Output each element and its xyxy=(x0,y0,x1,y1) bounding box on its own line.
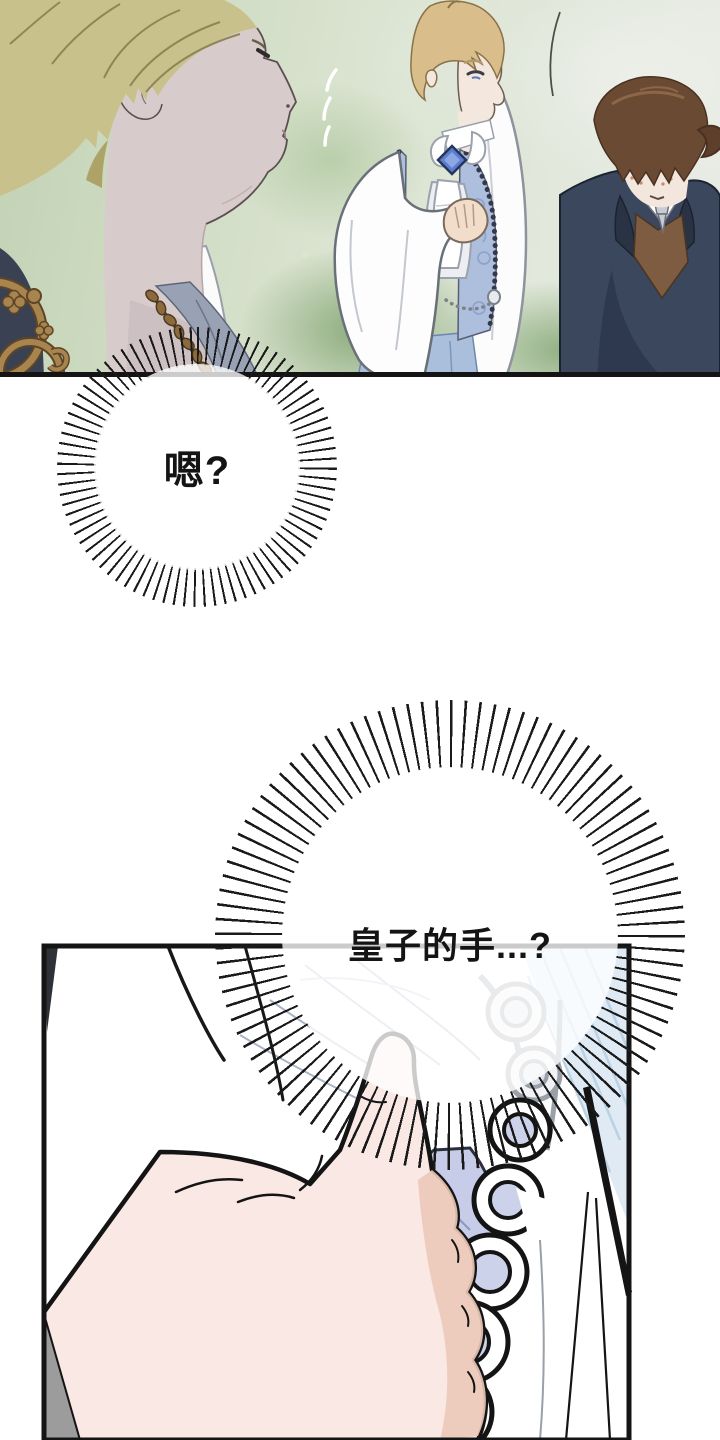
attendant-figure xyxy=(560,77,720,377)
noble-hair-nape-shadow xyxy=(86,140,108,188)
sparkle-marks xyxy=(324,70,336,145)
prince-ear xyxy=(426,70,437,87)
panel-garden-scene xyxy=(0,0,720,377)
prince-hand xyxy=(444,199,488,242)
bubble-1-text: 嗯? xyxy=(57,327,337,607)
prince-figure xyxy=(335,1,526,377)
garden-scene-art xyxy=(0,0,720,377)
motion-line xyxy=(550,12,560,96)
attendant-suit xyxy=(560,171,720,377)
bubble-2-text: 皇子的手...? xyxy=(215,700,685,1170)
speech-bubble-1: 嗯? xyxy=(57,327,337,607)
speech-bubble-2: 皇子的手...? xyxy=(215,700,685,1170)
noble-profile-figure xyxy=(0,0,296,377)
noble-nostril xyxy=(286,104,290,108)
comic-page: 嗯? 皇子的手...? xyxy=(0,0,720,1440)
